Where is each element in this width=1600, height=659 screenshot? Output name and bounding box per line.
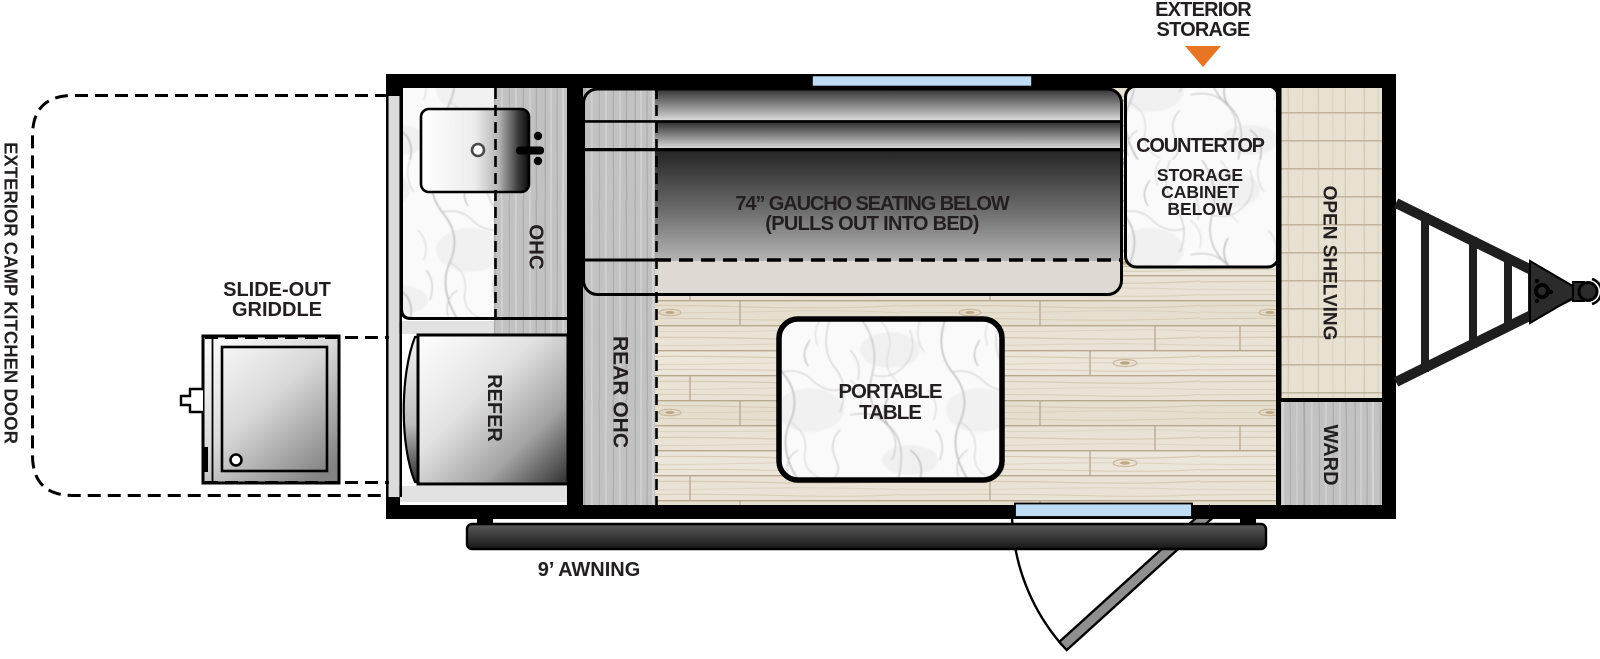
svg-text:TABLE: TABLE <box>859 401 921 424</box>
svg-text:GRIDDLE: GRIDDLE <box>232 299 322 321</box>
svg-text:OHC: OHC <box>525 224 548 270</box>
svg-text:STORAGE: STORAGE <box>1157 19 1250 41</box>
svg-text:SLIDE-OUT: SLIDE-OUT <box>223 279 331 301</box>
svg-text:EXTERIOR: EXTERIOR <box>1155 0 1252 21</box>
svg-text:COUNTERTOP: COUNTERTOP <box>1136 135 1264 157</box>
svg-text:WARD: WARD <box>1319 424 1341 485</box>
svg-text:EXTERIOR CAMP KITCHEN DOOR: EXTERIOR CAMP KITCHEN DOOR <box>1 142 22 444</box>
svg-text:REAR OHC: REAR OHC <box>609 336 632 448</box>
svg-text:(PULLS OUT INTO BED): (PULLS OUT INTO BED) <box>765 213 978 235</box>
svg-text:PORTABLE: PORTABLE <box>838 380 942 403</box>
svg-text:74” GAUCHO SEATING BELOW: 74” GAUCHO SEATING BELOW <box>735 193 1009 215</box>
svg-text:OPEN SHELVING: OPEN SHELVING <box>1319 186 1340 341</box>
svg-text:REFER: REFER <box>483 374 505 442</box>
svg-text:BELOW: BELOW <box>1167 199 1233 219</box>
svg-text:9’ AWNING: 9’ AWNING <box>538 559 641 581</box>
